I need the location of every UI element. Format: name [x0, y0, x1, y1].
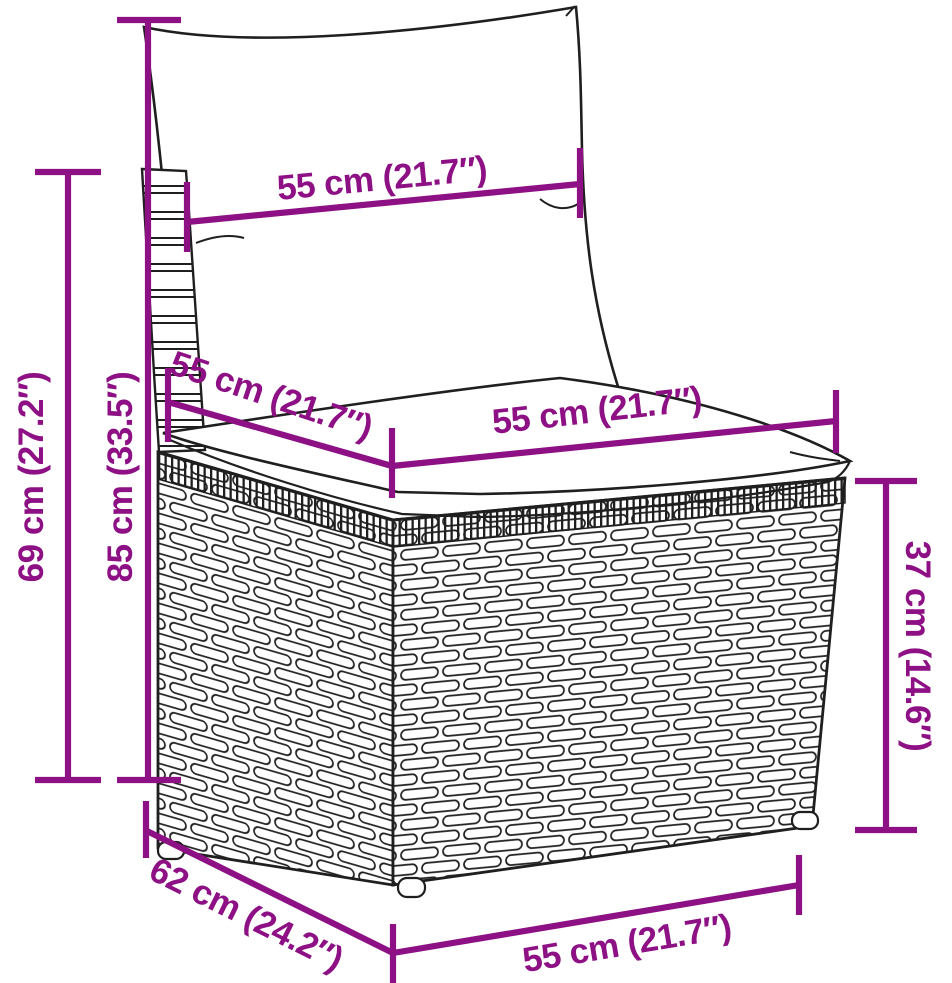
dim-label-overall-height: 85 cm (33.5″)	[101, 372, 141, 583]
sofa-art	[142, 6, 850, 897]
foot-right	[792, 812, 818, 829]
dim-label-back-height: 69 cm (27.2″)	[12, 372, 52, 583]
dim-label-base-height: 37 cm (14.6″)	[897, 541, 937, 752]
foot-front	[398, 878, 425, 897]
product-dimension-diagram: 69 cm (27.2″) 85 cm (33.5″) 55 cm (21.7″…	[0, 0, 952, 983]
furniture-line-art	[0, 0, 952, 983]
